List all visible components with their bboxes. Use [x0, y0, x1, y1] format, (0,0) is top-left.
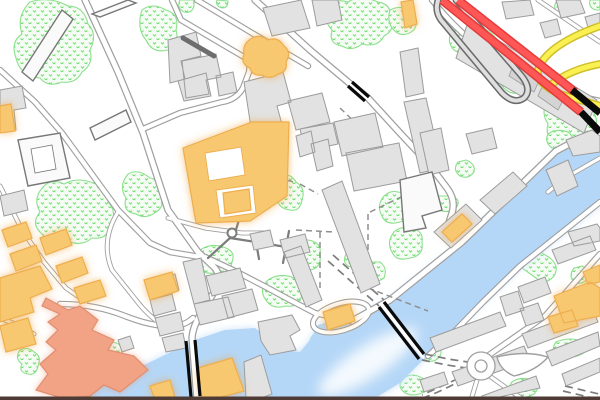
map-canvas[interactable] — [0, 0, 600, 400]
map-svg — [0, 0, 600, 400]
garden-circle — [228, 229, 237, 238]
bottom-edge-bar — [0, 397, 600, 400]
